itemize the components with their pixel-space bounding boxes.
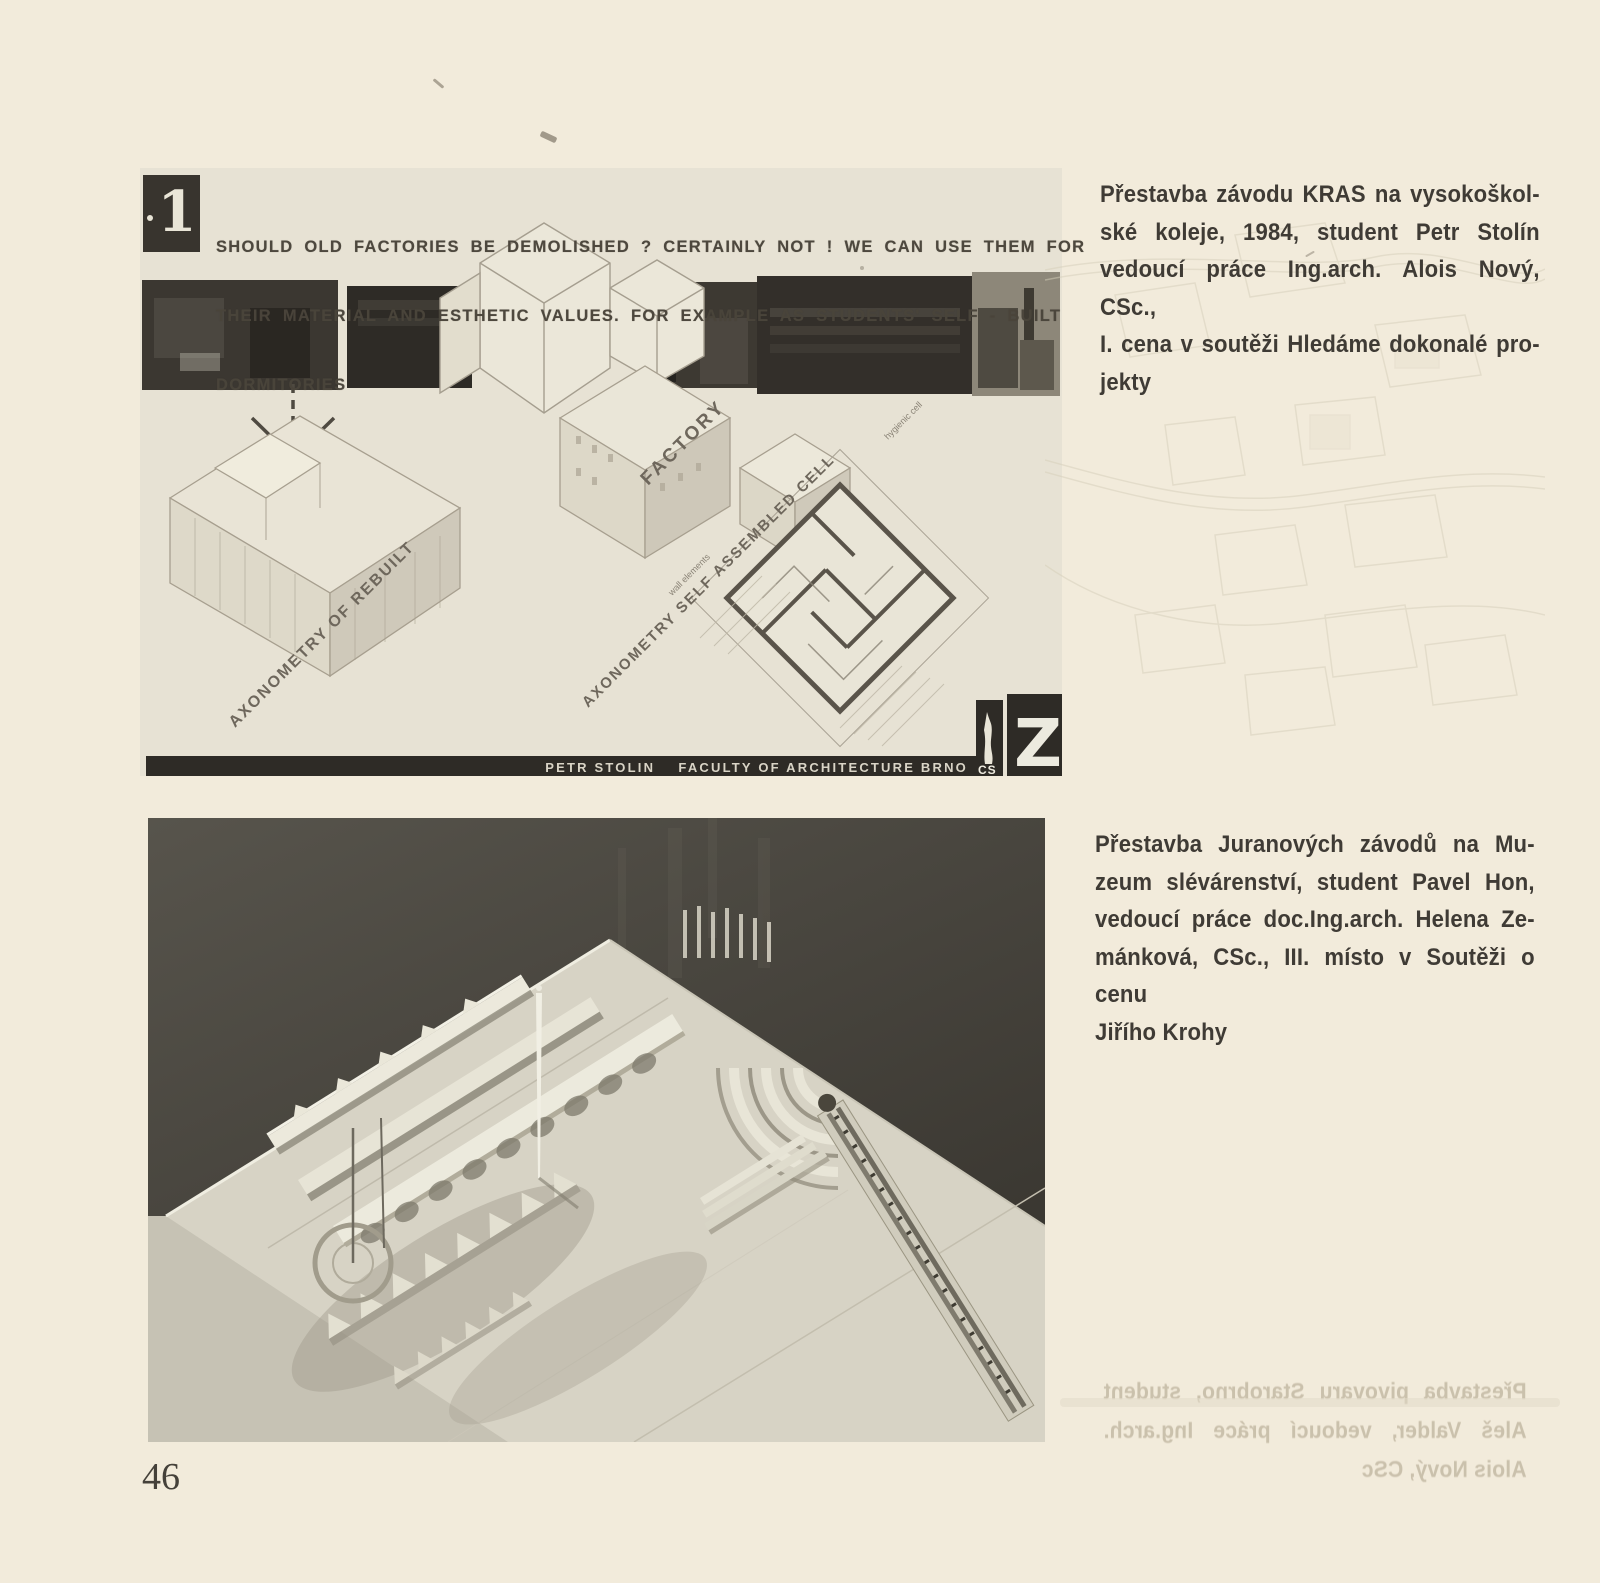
caption-line: jekty [1100,364,1540,402]
caption-line: vedoucí práce Ing.arch. Alois Nový, CSc.… [1100,251,1540,326]
cs-label: CS [978,763,997,776]
caption-line: Přestavba závodu KRAS na vysokoškol- [1100,176,1540,214]
footer-credit-text: PETR STOLIN FACULTY OF ARCHITECTURE BRNO [545,760,968,775]
bleed-line: Alois Nový, CSc [1103,1450,1526,1489]
caption-line: Přestavba Juranových závodů na Mu- [1095,826,1535,864]
dust-speck [433,78,445,89]
caption-line: zeum slévárenství, student Pavel Hon, [1095,864,1535,902]
ghost-band [1060,1398,1560,1407]
caption-line: ské koleje, 1984, student Petr Stolín [1100,214,1540,252]
caption-juranovy-project: Přestavba Juranových závodů na Mu- zeum … [1095,826,1535,1051]
caption-line: I. cena v soutěži Hledáme dokonalé pro- [1100,326,1540,364]
bleed-line: Aleš Valder, vedoucí práce Ing.arch. [1103,1411,1526,1450]
plate-dot [147,215,153,221]
bleed-through-caption: Přestavba pivovaru Starobrno, student Al… [1103,1372,1526,1489]
headline-line: SHOULD OLD FACTORIES BE DEMOLISHED ? CER… [216,236,1006,259]
page-number: 46 [142,1455,180,1499]
footer-strip: PETR STOLIN FACULTY OF ARCHITECTURE BRNO [146,756,976,776]
dust-speck [860,266,864,270]
caption-line: Jiřího Krohy [1095,1014,1535,1052]
plate-number-block: 1 [143,175,200,252]
headline-line: THEIR MATERIAL AND ESTHETIC VALUES. FOR … [216,305,1006,328]
poster-headline: SHOULD OLD FACTORIES BE DEMOLISHED ? CER… [216,190,1006,443]
caption-kras-project: Přestavba závodu KRAS na vysokoškol- ské… [1100,176,1540,401]
student-poster-panel: AXONOMETRY OF REBUILT FACTORY AXONOMETRY… [140,168,1062,776]
caption-line: mánková, CSc., III. místo v Soutěži o ce… [1095,939,1535,1014]
plate-number: 1 [158,184,197,240]
model-photograph [148,818,1045,1442]
headline-line: DORMITORIES [216,374,1006,397]
caption-line: vedoucí práce doc.Ing.arch. Helena Ze- [1095,901,1535,939]
dust-speck [540,131,558,144]
